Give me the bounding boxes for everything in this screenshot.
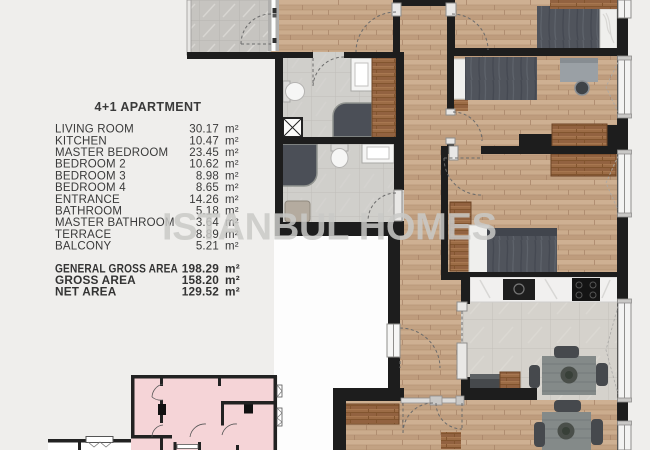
svg-text:BEDROOM 4: BEDROOM 4 bbox=[55, 182, 126, 194]
svg-text:NET AREA: NET AREA bbox=[55, 284, 117, 298]
svg-text:BEDROOM 2: BEDROOM 2 bbox=[55, 159, 126, 171]
svg-text:14.26: 14.26 bbox=[189, 194, 219, 206]
svg-text:4+1 APARTMENT: 4+1 APARTMENT bbox=[95, 100, 202, 114]
svg-text:LIVING ROOM: LIVING ROOM bbox=[55, 124, 134, 136]
svg-text:m²: m² bbox=[225, 159, 239, 171]
svg-text:BEDROOM 3: BEDROOM 3 bbox=[55, 170, 126, 182]
svg-text:MASTER BATHROOM: MASTER BATHROOM bbox=[55, 217, 175, 229]
svg-text:KITCHEN: KITCHEN bbox=[55, 135, 107, 147]
svg-text:MASTER BEDROOM: MASTER BEDROOM bbox=[55, 147, 168, 159]
svg-text:ENTRANCE: ENTRANCE bbox=[55, 194, 120, 206]
svg-text:BATHROOM: BATHROOM bbox=[55, 206, 122, 218]
svg-text:8.65: 8.65 bbox=[196, 182, 219, 194]
svg-text:129.52: 129.52 bbox=[182, 284, 220, 298]
svg-text:m²: m² bbox=[225, 135, 239, 147]
svg-text:8.98: 8.98 bbox=[196, 170, 219, 182]
svg-text:TERRACE: TERRACE bbox=[55, 229, 111, 241]
svg-text:m²: m² bbox=[225, 194, 239, 206]
svg-text:m²: m² bbox=[225, 284, 240, 298]
svg-text:m²: m² bbox=[225, 182, 239, 194]
svg-text:BALCONY: BALCONY bbox=[55, 241, 111, 253]
svg-text:23.45: 23.45 bbox=[189, 147, 219, 159]
svg-text:ISTANBUL HOMES: ISTANBUL HOMES bbox=[162, 207, 498, 249]
svg-text:m²: m² bbox=[225, 124, 239, 136]
svg-text:30.17: 30.17 bbox=[189, 124, 219, 136]
svg-text:10.62: 10.62 bbox=[189, 159, 219, 171]
svg-text:10.47: 10.47 bbox=[189, 135, 219, 147]
svg-text:m²: m² bbox=[225, 170, 239, 182]
svg-text:m²: m² bbox=[225, 147, 239, 159]
